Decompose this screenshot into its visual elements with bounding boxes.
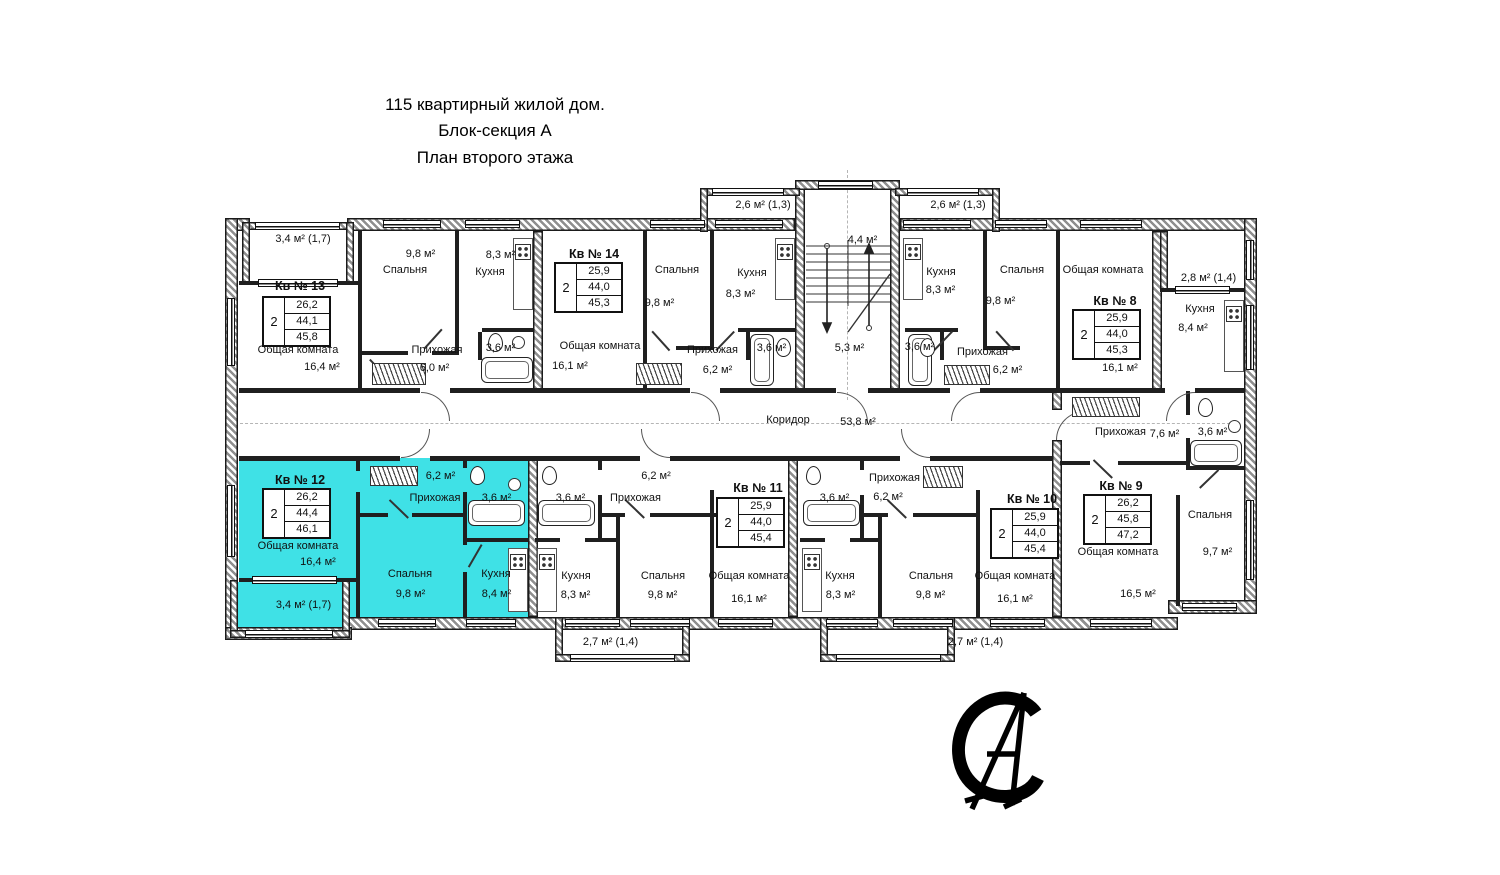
apartment-number: Кв № 12 xyxy=(250,473,350,487)
living-area-value: 25,9 xyxy=(577,264,621,280)
door-arc xyxy=(901,429,930,458)
living-area-value: 25,9 xyxy=(1013,510,1057,526)
room-area-living: 16,1 м² xyxy=(1095,362,1145,375)
door-arc xyxy=(641,429,670,458)
door-arc xyxy=(951,392,980,421)
room-label-living: Общая комната xyxy=(243,344,353,357)
apartment-area-table: 2 25,9 44,0 45,4 xyxy=(716,497,785,548)
apartment-number: Кв № 9 xyxy=(1086,479,1156,493)
apartment-number: Кв № 8 xyxy=(1080,294,1150,308)
room-area-bedroom: 9,8 м² xyxy=(637,297,682,310)
room-label-hall: Прихожая xyxy=(862,472,927,485)
room-area-hall: 6,2 м² xyxy=(418,470,463,483)
room-area-bath: 3,6 м² xyxy=(478,342,523,355)
window xyxy=(227,298,235,366)
corridor-area: 53,8 м² xyxy=(833,416,883,429)
room-label-living: Общая комната xyxy=(960,570,1070,583)
room-label-kitchen: Кухня xyxy=(465,266,515,279)
room-area-bath: 3,6 м² xyxy=(897,341,942,354)
room-area-kitchen: 8,3 м² xyxy=(918,284,963,297)
window xyxy=(570,654,675,662)
total-area-value: 44,1 xyxy=(285,314,329,330)
apartment-area-table: 2 25,9 44,0 45,3 xyxy=(554,262,623,313)
window xyxy=(255,222,340,230)
living-area-value: 26,2 xyxy=(1106,496,1150,512)
room-area-living: 16,1 м² xyxy=(545,360,595,373)
room-label-living: Общая комната xyxy=(1048,264,1158,277)
room-area-kitchen: 8,3 м² xyxy=(818,589,863,602)
room-area-hall: 6,2 м² xyxy=(695,364,740,377)
room-area-living: 16,1 м² xyxy=(990,593,1040,606)
wall xyxy=(1052,391,1062,410)
room-area-hall: 6,2 м² xyxy=(868,491,908,504)
window xyxy=(383,220,441,228)
balcony-label: 3,4 м² (1,7) xyxy=(256,599,351,612)
total-area-value: 45,8 xyxy=(1106,512,1150,528)
room-area-kitchen: 8,3 м² xyxy=(718,288,763,301)
rooms-count: 2 xyxy=(264,298,285,345)
room-area-bedroom: 9,8 м² xyxy=(978,295,1023,308)
room-label-bedroom: Спальня xyxy=(901,570,961,583)
area-with-balcony-value: 45,8 xyxy=(285,330,329,345)
area-with-balcony-value: 45,3 xyxy=(1095,343,1139,358)
room-label-living: Общая комната xyxy=(694,570,804,583)
room-label-living: Общая комната xyxy=(243,540,353,553)
apartment-number: Кв № 10 xyxy=(992,492,1072,506)
living-area-value: 25,9 xyxy=(739,499,783,515)
stair-lower-area: 5,3 м² xyxy=(827,342,872,355)
door-arc xyxy=(401,429,430,458)
room-label-bedroom: Спальня xyxy=(647,264,707,277)
total-area-value: 44,0 xyxy=(577,280,621,296)
room-label-living: Общая комната xyxy=(545,340,655,353)
corridor-label: Коридор xyxy=(758,414,818,427)
apartment-area-table: 2 26,2 44,4 46,1 xyxy=(262,488,331,539)
room-area-hall: 6,2 м² xyxy=(985,364,1030,377)
window xyxy=(715,220,783,228)
total-area-value: 44,0 xyxy=(739,515,783,531)
room-area-living: 16,5 м² xyxy=(1113,588,1163,601)
window xyxy=(995,220,1047,228)
room-label-hall: Прихожая xyxy=(407,344,467,357)
apartment-number: Кв № 14 xyxy=(549,247,639,261)
room-area-kitchen: 8,4 м² xyxy=(1168,322,1218,335)
room-area-bedroom: 9,8 м² xyxy=(398,248,443,261)
balcony-label: 2,8 м² (1,4) xyxy=(1166,272,1251,285)
area-with-balcony-value: 47,2 xyxy=(1106,528,1150,543)
window xyxy=(826,619,878,627)
window xyxy=(990,619,1045,627)
room-label-hall: Прихожая xyxy=(603,492,668,505)
room-area-bedroom: 9,7 м² xyxy=(1195,546,1240,559)
room-area-living: 16,4 м² xyxy=(297,361,347,374)
living-area-value: 26,2 xyxy=(285,298,329,314)
window xyxy=(565,619,620,627)
room-label-kitchen: Кухня xyxy=(815,570,865,583)
room-area-bath: 3,6 м² xyxy=(1190,426,1235,439)
architect-logo xyxy=(938,688,1064,814)
room-area-kitchen: 8,3 м² xyxy=(478,249,523,262)
balcony-label: 3,4 м² (1,7) xyxy=(258,233,348,246)
door-arc xyxy=(691,392,720,421)
room-label-hall: Прихожая xyxy=(405,492,465,505)
room-label-kitchen: Кухня xyxy=(471,568,521,581)
room-area-living: 16,4 м² xyxy=(293,556,343,569)
room-label-kitchen: Кухня xyxy=(551,570,601,583)
title-line-1: 115 квартирный жилой дом. xyxy=(330,92,660,118)
room-area-bedroom: 9,8 м² xyxy=(640,589,685,602)
rooms-count: 2 xyxy=(264,490,285,537)
staircase[interactable] xyxy=(806,240,890,334)
area-with-balcony-value: 45,4 xyxy=(1013,542,1057,557)
room-area-bedroom: 9,8 м² xyxy=(388,588,433,601)
window xyxy=(836,654,941,662)
window xyxy=(630,619,690,627)
total-area-value: 44,4 xyxy=(285,506,329,522)
window xyxy=(378,619,436,627)
room-label-kitchen: Кухня xyxy=(727,267,777,280)
room-label-bedroom: Спальня xyxy=(992,264,1052,277)
window xyxy=(1090,619,1152,627)
stair-upper-area: 4,4 м² xyxy=(840,234,885,247)
living-area-value: 25,9 xyxy=(1095,311,1139,327)
window xyxy=(718,619,773,627)
window xyxy=(1246,500,1254,580)
wall xyxy=(225,218,238,640)
room-area-bedroom: 9,8 м² xyxy=(908,589,953,602)
rooms-count: 2 xyxy=(1074,311,1095,358)
balcony-label: 2,7 м² (1,4) xyxy=(928,636,1023,649)
room-area-kitchen: 8,4 м² xyxy=(474,588,519,601)
area-with-balcony-value: 46,1 xyxy=(285,522,329,537)
window xyxy=(712,188,784,196)
room-area-living: 16,1 м² xyxy=(724,593,774,606)
apartment-area-table: 2 26,2 44,1 45,8 xyxy=(262,296,331,347)
room-label-bedroom: Спальня xyxy=(633,570,693,583)
wall xyxy=(795,180,805,391)
apartment-area-table: 2 26,2 45,8 47,2 xyxy=(1083,494,1152,545)
room-label-hall: Прихожая xyxy=(950,346,1015,359)
window xyxy=(650,220,705,228)
area-with-balcony-value: 45,3 xyxy=(577,296,621,311)
room-label-hall: Прихожая xyxy=(680,344,745,357)
balcony-label: 2,7 м² (1,4) xyxy=(563,636,658,649)
drawing-title: 115 квартирный жилой дом. Блок-секция А … xyxy=(330,92,660,171)
total-area-value: 44,0 xyxy=(1095,327,1139,343)
balcony-label: 2,6 м² (1,3) xyxy=(913,199,1003,212)
room-label-bedroom: Спальня xyxy=(1180,509,1240,522)
room-label-kitchen: Кухня xyxy=(1175,303,1225,316)
room-label-living: Общая комната xyxy=(1063,546,1173,559)
apartment-number: Кв № 11 xyxy=(718,481,798,495)
window xyxy=(907,188,979,196)
wall xyxy=(533,231,543,391)
room-label-kitchen: Кухня xyxy=(916,266,966,279)
rooms-count: 2 xyxy=(556,264,577,311)
window xyxy=(227,485,235,557)
balcony-label: 2,6 м² (1,3) xyxy=(718,199,808,212)
room-area-hall: 6,2 м² xyxy=(636,470,676,483)
wall xyxy=(890,180,900,391)
window xyxy=(245,630,333,638)
room-area-kitchen: 8,3 м² xyxy=(553,589,598,602)
living-area-value: 26,2 xyxy=(285,490,329,506)
room-area-bath: 3,6 м² xyxy=(548,492,593,505)
rooms-count: 2 xyxy=(992,510,1013,557)
total-area-value: 44,0 xyxy=(1013,526,1057,542)
apartment-area-table: 2 25,9 44,0 45,3 xyxy=(1072,309,1141,360)
area-with-balcony-value: 45,4 xyxy=(739,531,783,546)
room-area-bath: 3,6 м² xyxy=(812,492,857,505)
title-line-2: Блок-секция А xyxy=(330,118,660,144)
floor-plan: 115 квартирный жилой дом. Блок-секция А … xyxy=(0,0,1500,875)
rooms-count: 2 xyxy=(1085,496,1106,543)
room-area-hall: 6,0 м² xyxy=(412,362,457,375)
door-arc xyxy=(421,392,450,421)
window xyxy=(466,619,516,627)
window xyxy=(465,220,520,228)
apartment-number: Кв № 13 xyxy=(250,279,350,293)
room-label-bedroom: Спальня xyxy=(375,264,435,277)
room-label-bedroom: Спальня xyxy=(380,568,440,581)
window xyxy=(1080,220,1142,228)
rooms-count: 2 xyxy=(718,499,739,546)
room-area-bath: 3,6 м² xyxy=(474,492,519,505)
window xyxy=(818,181,873,189)
window xyxy=(903,220,971,228)
title-line-3: План второго этажа xyxy=(330,145,660,171)
window xyxy=(1246,305,1254,370)
apartment-area-table: 2 25,9 44,0 45,4 xyxy=(990,508,1059,559)
room-area-bath: 3,6 м² xyxy=(749,342,794,355)
window xyxy=(893,619,953,627)
room-area-hall: 7,6 м² xyxy=(1142,428,1187,441)
